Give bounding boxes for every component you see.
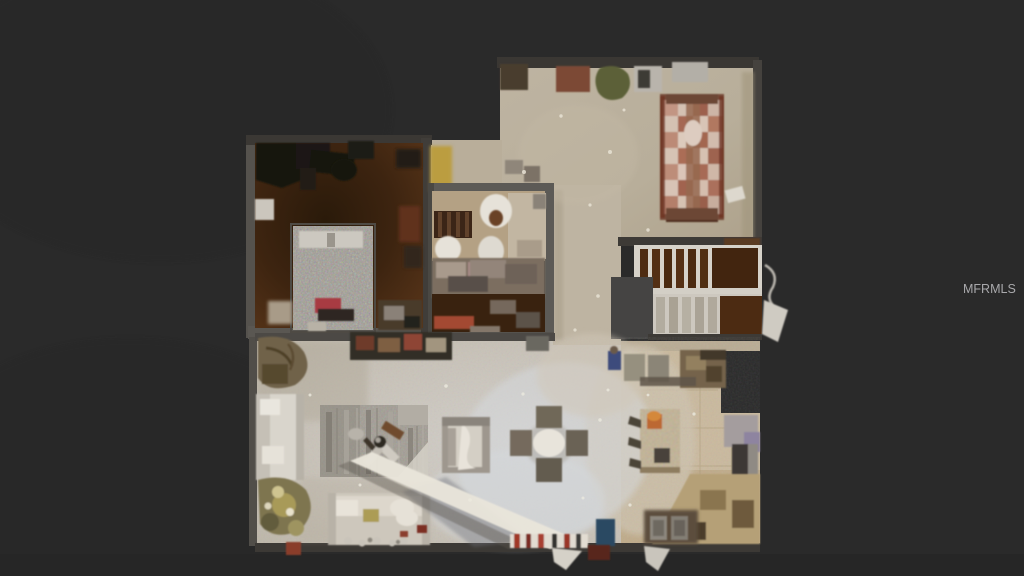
svg-text:MFRMLS: MFRMLS — [963, 282, 1016, 296]
